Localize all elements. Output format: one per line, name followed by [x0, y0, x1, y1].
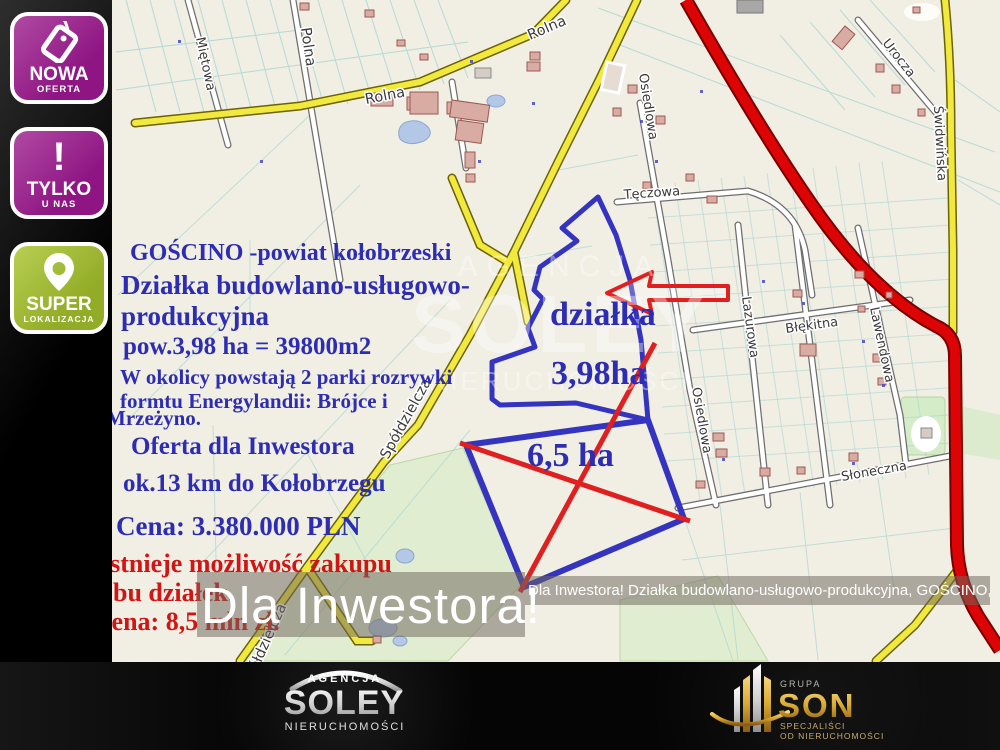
offer-line-5: W okolicy powstają 2 parki rozrywki — [120, 365, 452, 390]
left-badge-strip: NOWA OFERTA ! TYLKO U NAS SUPER LOKALIZA… — [0, 0, 112, 662]
soley-sub-text: NIERUCHOMOŚCI — [285, 720, 406, 733]
white-patch — [904, 3, 940, 21]
offer-investor: Oferta dla Inwestora — [131, 433, 355, 461]
area-65-label: 6,5 ha — [527, 437, 614, 475]
son-sub1-text: SPECJALIŚCI — [780, 720, 845, 731]
banner-subtitle: Dla Inwestora! Działka budowlano-usługow… — [528, 582, 990, 599]
area-398-label: 3,98ha — [551, 355, 646, 393]
tag-icon — [14, 21, 104, 63]
badge-label-top: TYLKO — [14, 180, 104, 199]
location-pin-icon — [14, 251, 104, 293]
badge-label-top: SUPER — [14, 295, 104, 314]
son-building-icon — [712, 664, 788, 732]
son-name-text: SON — [778, 687, 856, 724]
badge-super-lokalizacja: SUPER LOKALIZACJA — [10, 242, 108, 334]
dzialka-label: działka — [550, 296, 656, 334]
badge-label-bottom: LOKALIZACJA — [14, 314, 104, 324]
soley-name-text: SOLEY — [284, 684, 404, 722]
badge-label-top: NOWA — [14, 65, 104, 84]
offer-area: pow.3,98 ha = 39800m2 — [123, 333, 371, 361]
offer-price: Cena: 3.380.000 PLN — [116, 511, 361, 542]
son-logo: GRUPA SON SPECJALIŚCI OD NIERUCHOMOŚCI — [712, 664, 884, 741]
badge-nowa-oferta: NOWA OFERTA — [10, 12, 108, 104]
offer-title: GOŚCINO -powiat kołobrzeski — [130, 240, 451, 267]
badge-label-bottom: U NAS — [14, 199, 104, 210]
offer-line-2: Działka budowlano-usługowo- — [121, 270, 470, 301]
soley-logo: AGENCJA SOLEY NIERUCHOMOŚCI — [284, 673, 405, 733]
listing-image: Miętowa Polna Rolna Rolna Spółdzielcza S… — [0, 0, 1000, 750]
offer-line-7: Mrzeżyno. — [106, 406, 201, 431]
badge-tylko-u-nas: ! TYLKO U NAS — [10, 127, 108, 219]
badge-label-bottom: OFERTA — [14, 84, 104, 95]
footer-bar: AGENCJA SOLEY NIERUCHOMOŚCI GRUPA SON SP… — [0, 662, 1000, 750]
banner-headline: Dla Inwestora! — [201, 576, 541, 635]
exclamation-icon: ! — [14, 136, 104, 178]
offer-line-3: produkcyjna — [121, 301, 269, 332]
offer-distance: ok.13 km do Kołobrzegu — [123, 470, 386, 498]
son-sub2-text: OD NIERUCHOMOŚCI — [780, 730, 884, 741]
